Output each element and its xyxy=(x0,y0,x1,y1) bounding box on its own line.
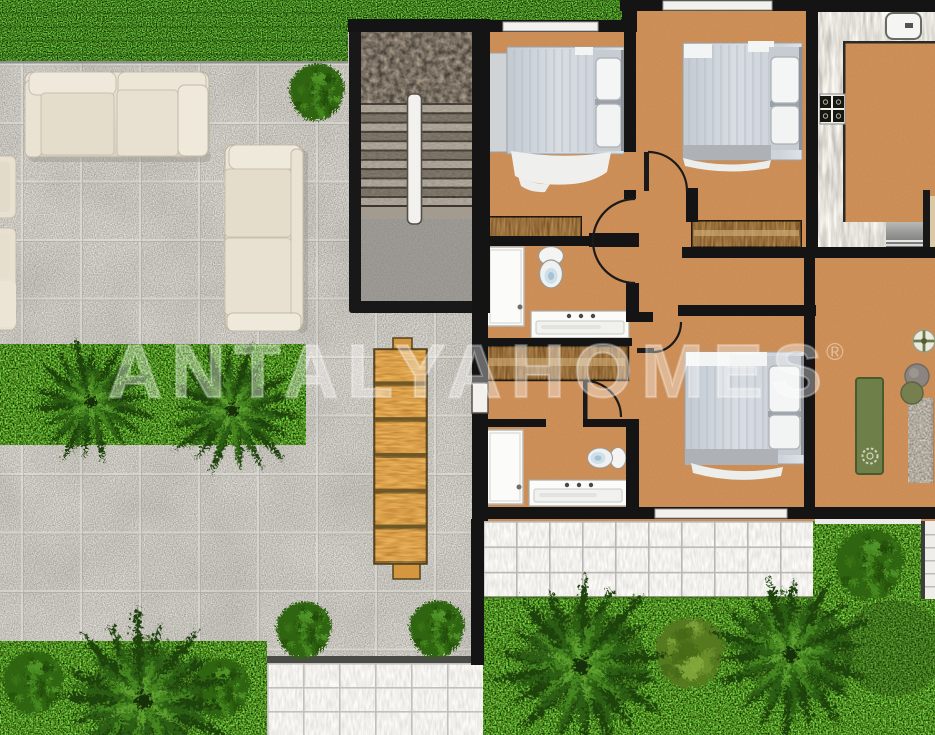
svg-text:ANTALYAHOMES: ANTALYAHOMES xyxy=(108,329,822,413)
svg-text:®: ® xyxy=(826,339,844,366)
